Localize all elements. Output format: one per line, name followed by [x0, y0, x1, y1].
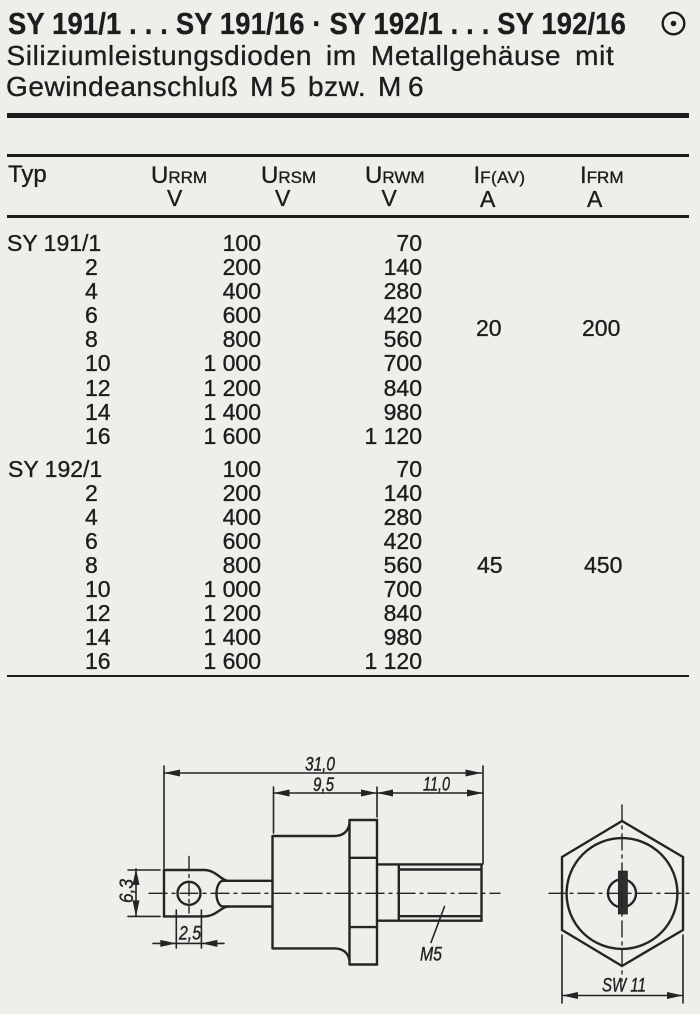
svg-text:11,0: 11,0: [423, 774, 450, 796]
svg-text:SW 11: SW 11: [602, 976, 646, 997]
svg-text:2,5: 2,5: [178, 924, 201, 945]
svg-text:M5: M5: [420, 945, 442, 966]
svg-text:9,5: 9,5: [313, 774, 334, 796]
svg-text:31,0: 31,0: [305, 754, 335, 776]
svg-text:6,3: 6,3: [116, 879, 138, 903]
